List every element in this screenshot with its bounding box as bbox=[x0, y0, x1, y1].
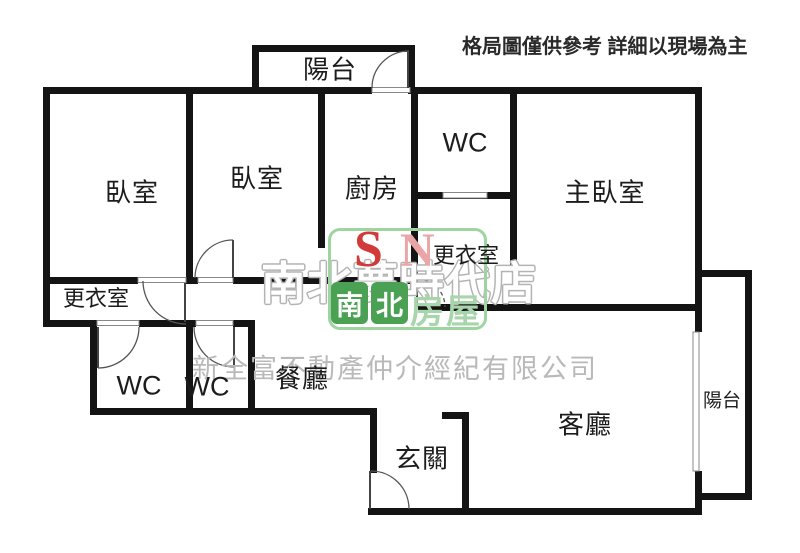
wall-entry-left bbox=[370, 412, 377, 473]
wall-entry-right bbox=[462, 412, 469, 515]
room-label-entry: 玄關 bbox=[395, 439, 449, 476]
room-label-balcony-top: 陽台 bbox=[303, 50, 357, 87]
wall-balcony-right-top bbox=[695, 270, 752, 277]
closet-left-door-sill bbox=[138, 278, 186, 283]
room-label-wc-mid: WC bbox=[185, 372, 230, 403]
wall-balcony-right-bottom bbox=[695, 493, 752, 500]
disclaimer-text: 格局圖僅供參考 詳細以現場為主 bbox=[462, 30, 748, 59]
room-label-closet-master: 更衣室 bbox=[433, 238, 499, 270]
wall-balcony-left bbox=[252, 45, 259, 94]
bedroom2-door-arc bbox=[195, 240, 233, 278]
wall-kitchen-left bbox=[318, 87, 325, 248]
wall-outer-left bbox=[43, 87, 50, 327]
room-label-living: 客廳 bbox=[558, 405, 612, 442]
wc1-door-sill bbox=[97, 321, 139, 326]
closet-left-door-arc bbox=[143, 281, 186, 324]
wall-living-right-lower bbox=[695, 471, 702, 515]
room-label-balcony-right: 陽台 bbox=[703, 386, 741, 413]
wall-closet-left-bottom bbox=[43, 320, 97, 327]
room-label-bedroom-mid: 臥室 bbox=[230, 159, 284, 196]
watermark-company-name: 新全富不動產仲介經紀有限公司 bbox=[192, 347, 598, 386]
room-label-dining: 餐廳 bbox=[275, 359, 329, 396]
wall-wc1-left bbox=[90, 320, 97, 415]
wall-bedroom-divider bbox=[186, 87, 193, 283]
entry-door-arc bbox=[371, 471, 409, 509]
logo-letter-n: N bbox=[400, 227, 435, 275]
room-label-closet-left: 更衣室 bbox=[63, 281, 129, 313]
wall-bottom-main bbox=[368, 508, 702, 515]
room-label-wc-top: WC bbox=[443, 128, 488, 159]
logo-brand-tile-1: 南 bbox=[331, 282, 368, 324]
wc-top-window bbox=[443, 193, 487, 199]
wall-master-left bbox=[510, 87, 517, 272]
balcony-door-sill bbox=[372, 88, 410, 93]
wall-balcony-right bbox=[408, 45, 415, 94]
wall-bottom-left bbox=[90, 408, 377, 415]
room-label-master-bedroom: 主臥室 bbox=[564, 173, 645, 210]
wall-outer-right bbox=[695, 87, 702, 332]
balcony-door-arc bbox=[372, 51, 409, 88]
balcony-sliding-door bbox=[693, 332, 699, 471]
logo-brand-secondary: 房屋 bbox=[410, 284, 482, 333]
logo-brand-tile-2: 北 bbox=[371, 282, 408, 324]
bedroom2-door-sill bbox=[198, 278, 233, 283]
room-label-wc-left: WC bbox=[117, 371, 162, 402]
wall-balcony-right-outer bbox=[745, 270, 752, 500]
floor-plan: 新全富不動產仲介經紀有限公司 南北夢時代店 S N 南 北 房屋 格局圖僅供參考… bbox=[0, 0, 800, 553]
logo-letter-s: S bbox=[354, 224, 383, 276]
wc2-door-sill bbox=[196, 321, 233, 326]
wc1-door-arc bbox=[98, 327, 139, 368]
wall-top-right bbox=[410, 87, 702, 94]
room-label-kitchen: 廚房 bbox=[345, 169, 399, 206]
room-label-bedroom-left: 臥室 bbox=[105, 173, 159, 210]
wall-bedroom2-bottom-a bbox=[186, 277, 198, 284]
